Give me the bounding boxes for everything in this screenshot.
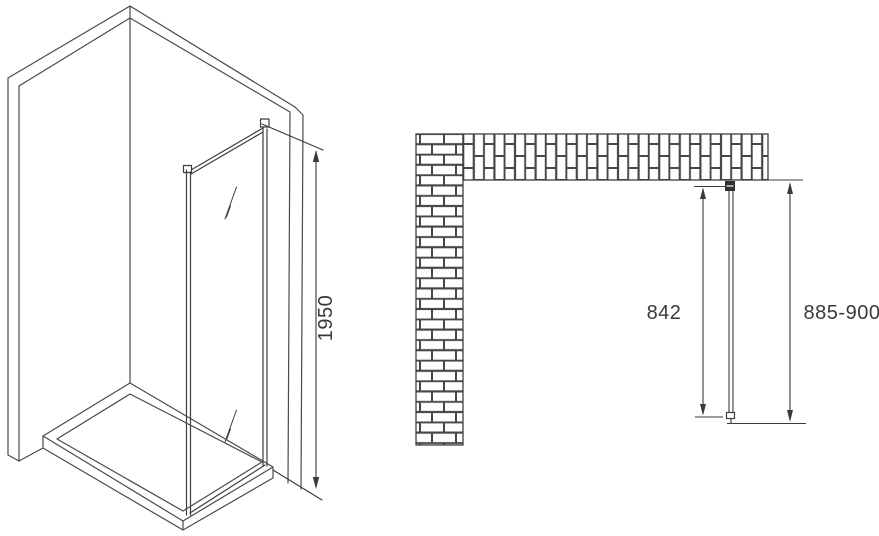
arrow-down-icon [787, 410, 793, 422]
arrow-down-icon [313, 477, 319, 489]
arrow-up-icon [313, 150, 319, 162]
glass-width-dimension-label: 842 [647, 302, 682, 324]
glass-panel-3d [184, 119, 270, 515]
technical-drawing-page: 1950 842 885-900 [0, 0, 879, 536]
arrow-down-icon [700, 404, 706, 416]
glass-panel-plan [725, 181, 735, 423]
tray-outer-rim [43, 383, 273, 521]
extension-line-top [262, 124, 323, 150]
extension-line-bottom [273, 470, 322, 500]
shower-enclosure-diagram: 1950 842 885-900 [0, 0, 879, 536]
right-wall-outer-edge [130, 6, 303, 489]
corner-walls [8, 6, 303, 489]
arrow-up-icon [700, 188, 706, 200]
side-view-3d: 1950 [8, 6, 337, 530]
right-wall-inner-edge [130, 18, 290, 483]
glass-line [729, 191, 733, 417]
brick-wall-horizontal [463, 134, 768, 180]
glass-hatch-marks [225, 187, 237, 442]
glass-end-cap [727, 413, 735, 419]
left-wall-outer-edge [8, 6, 130, 461]
height-dimension-label: 1950 [315, 295, 337, 342]
front-profile [187, 170, 191, 515]
left-wall-inner-edge [19, 18, 130, 461]
wall-profile [263, 127, 267, 466]
tray-inner-rim [57, 394, 262, 511]
arrow-up-icon [787, 182, 793, 194]
floor-line-left [19, 448, 43, 461]
overall-width-dimension-label: 885-900 [804, 302, 879, 324]
height-dimension [262, 124, 323, 500]
overall-width-dimension [727, 182, 806, 424]
brick-wall-vertical [416, 134, 463, 445]
glass-top-edge [191, 128, 263, 174]
shower-tray [43, 383, 273, 530]
wall-profile-top-cap [261, 119, 270, 127]
plan-view: 842 885-900 [416, 134, 879, 445]
glass-width-dimension [694, 187, 726, 418]
